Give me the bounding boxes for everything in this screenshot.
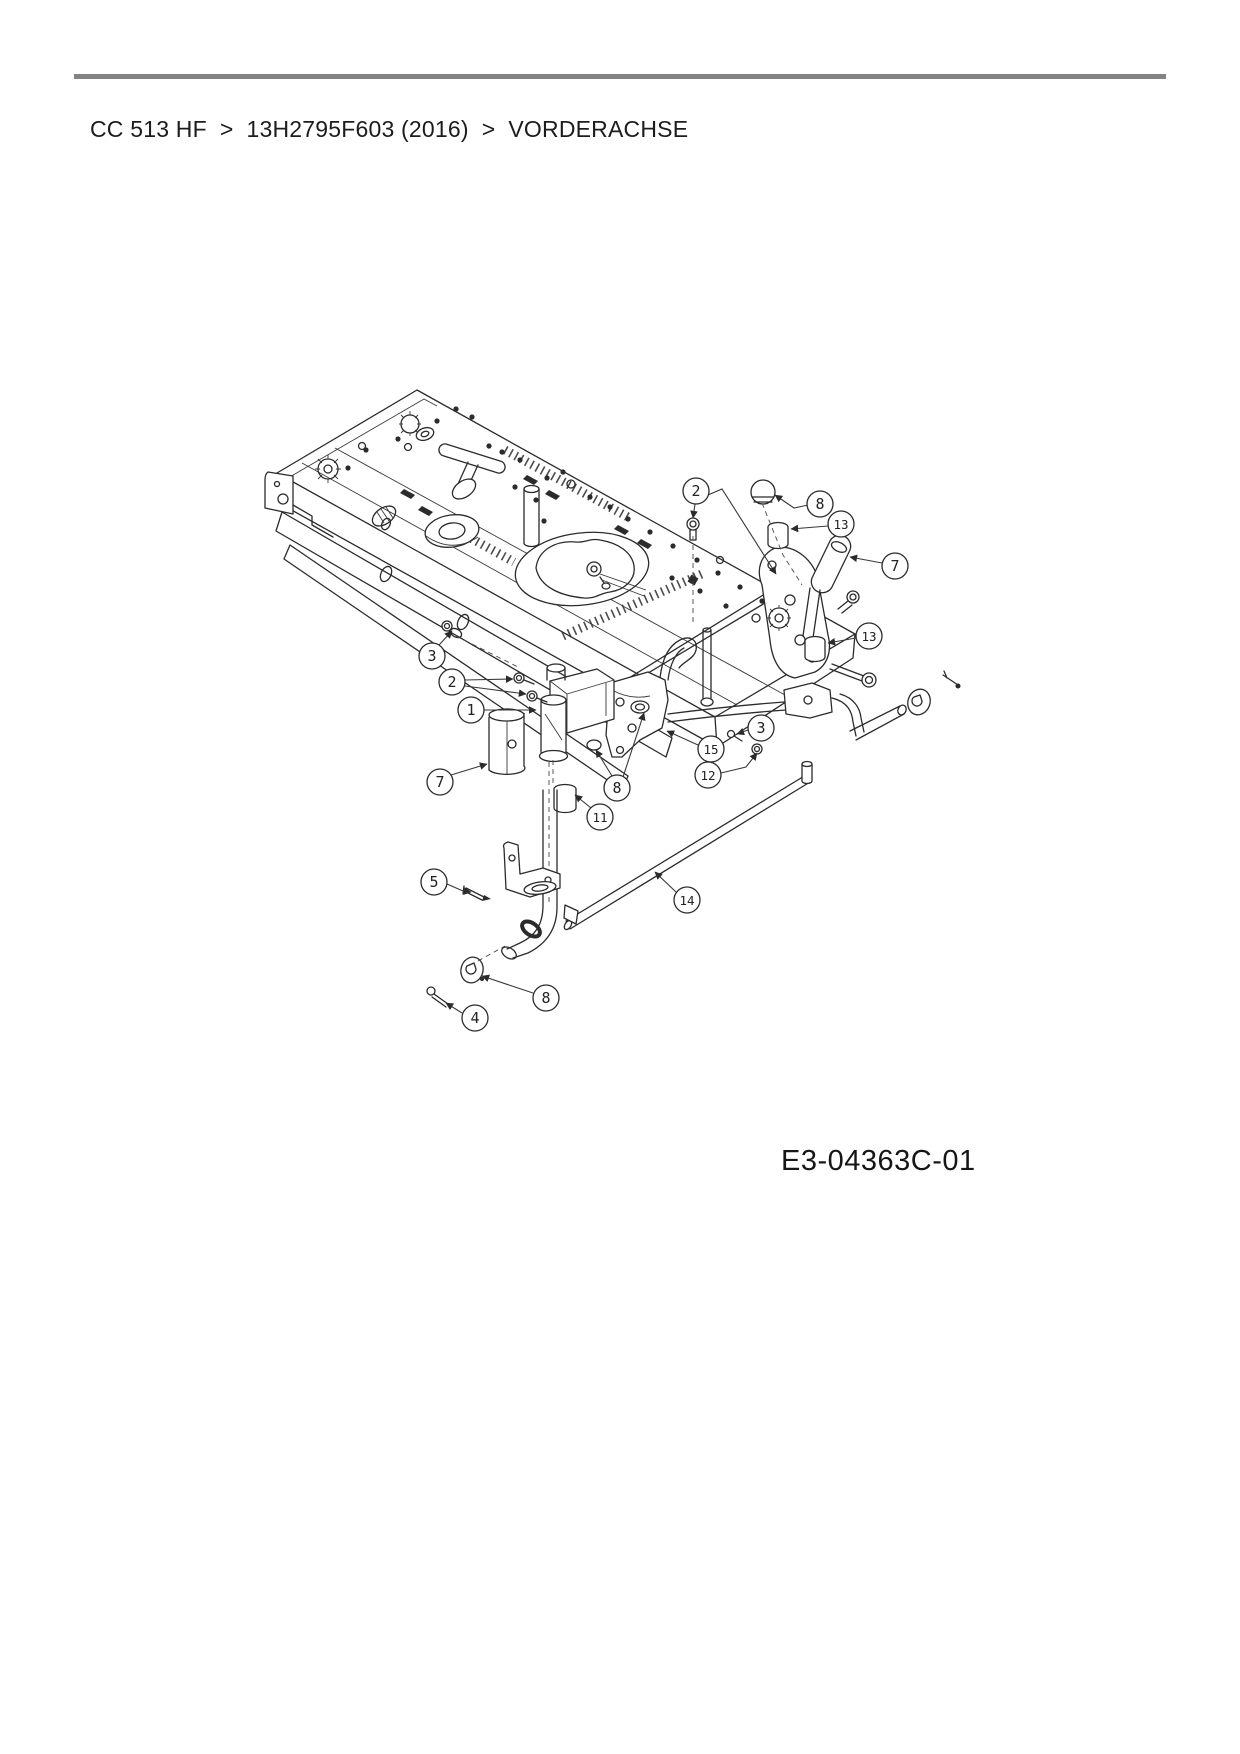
pivot-assembly: [489, 664, 614, 813]
svg-text:7: 7: [435, 773, 444, 791]
svg-text:14: 14: [679, 893, 694, 908]
callout-5: 5: [421, 869, 471, 895]
callout-11: 11: [575, 795, 613, 830]
svg-text:15: 15: [703, 742, 718, 757]
catalog-page: CC 513 HF>13H2795F603 (2016)>VORDERACHSE: [0, 0, 1240, 1754]
svg-text:4: 4: [470, 1009, 479, 1027]
svg-text:5: 5: [429, 873, 438, 891]
svg-text:1: 1: [466, 701, 475, 719]
callout-4: 4: [446, 1003, 488, 1031]
svg-text:8: 8: [541, 989, 550, 1007]
svg-text:8: 8: [612, 779, 621, 797]
svg-text:13: 13: [861, 629, 876, 644]
callout-14: 14: [655, 872, 700, 913]
exploded-diagram: 281371332178111512314584: [0, 0, 1240, 1754]
svg-text:12: 12: [700, 768, 715, 783]
callout-7: 7: [850, 553, 908, 579]
drawing-number: E3-04363C-01: [781, 1145, 976, 1178]
callout-8: 8: [482, 976, 559, 1011]
callout-8: 8: [775, 491, 833, 517]
svg-text:11: 11: [592, 810, 607, 825]
callout-3: 3: [737, 715, 774, 741]
svg-text:13: 13: [833, 517, 848, 532]
svg-text:7: 7: [890, 557, 899, 575]
svg-text:2: 2: [447, 673, 456, 691]
callout-7: 7: [427, 764, 487, 795]
svg-text:2: 2: [691, 482, 700, 500]
svg-text:3: 3: [756, 719, 765, 737]
lower-steering-shaft: [458, 762, 812, 986]
svg-text:3: 3: [427, 647, 436, 665]
svg-text:8: 8: [815, 495, 824, 513]
